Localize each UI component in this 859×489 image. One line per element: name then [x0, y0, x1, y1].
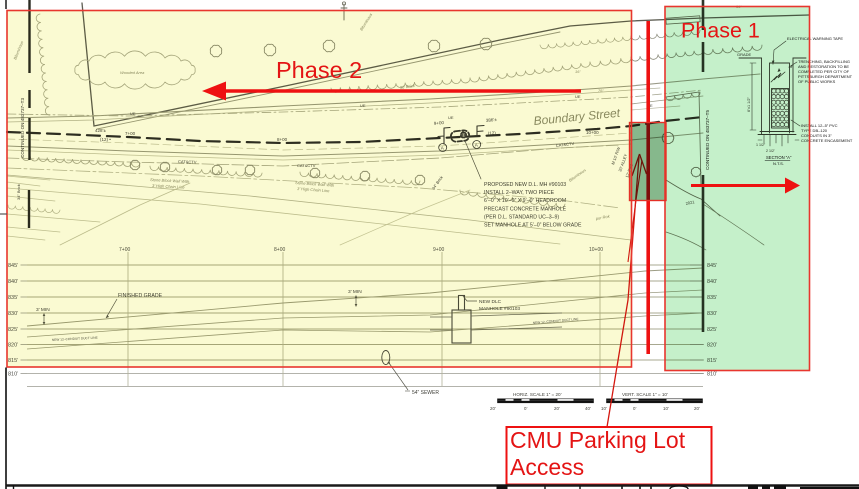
svg-text:0’: 0’: [633, 406, 636, 411]
svg-text:0’: 0’: [524, 406, 527, 411]
svg-text:20’: 20’: [554, 406, 560, 411]
svg-text:CMU Parking Lot: CMU Parking Lot: [510, 427, 686, 453]
svg-text:810’: 810’: [707, 372, 717, 378]
svg-text:VERT. SCALE 1” = 10’: VERT. SCALE 1” = 10’: [622, 392, 668, 397]
svg-text:Phase 2: Phase 2: [276, 57, 362, 83]
svg-text:HORIZ. SCALE 1” = 20’: HORIZ. SCALE 1” = 20’: [513, 392, 562, 397]
svg-text:Access: Access: [510, 454, 584, 480]
svg-text:810’: 810’: [8, 372, 18, 378]
svg-text:20’: 20’: [490, 406, 496, 411]
svg-text:E: E: [650, 103, 653, 108]
svg-text:10’: 10’: [663, 406, 669, 411]
svg-text:10’: 10’: [601, 406, 607, 411]
svg-text:Phase 1: Phase 1: [681, 19, 760, 43]
svg-text:54” SEWER: 54” SEWER: [412, 390, 439, 396]
svg-text:40’: 40’: [585, 406, 591, 411]
svg-text:20’: 20’: [694, 406, 700, 411]
